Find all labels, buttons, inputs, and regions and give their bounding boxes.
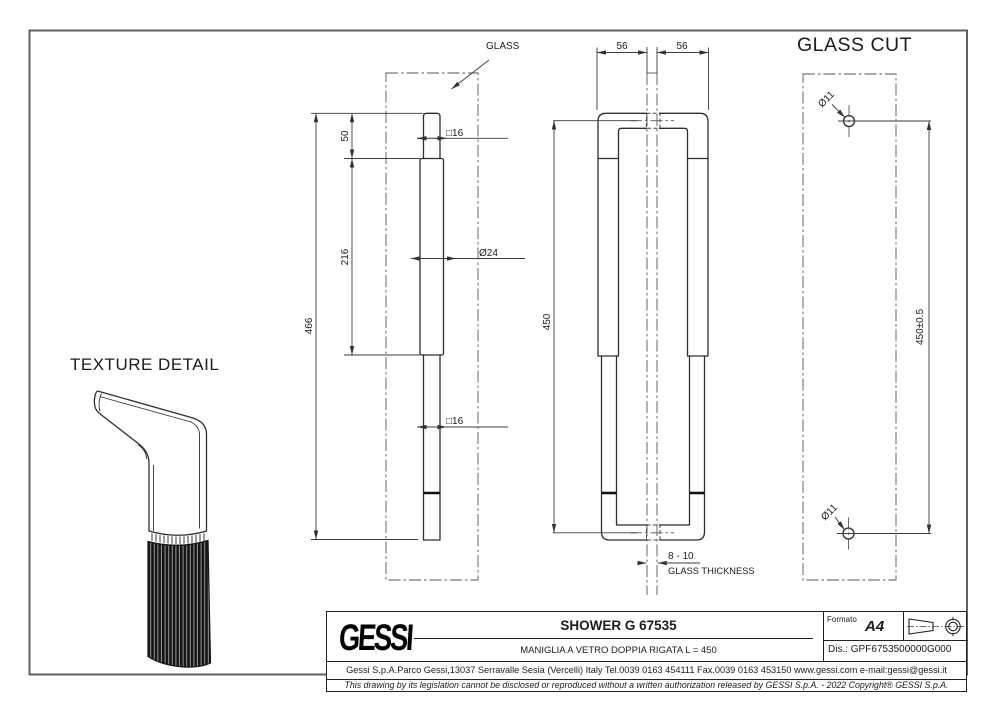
dim-450-tolerance-label: 450±0.5 [915,305,927,349]
glass-thickness-value: 8 - 10 [668,552,694,562]
texture-detail-title: TEXTURE DETAIL [70,355,219,375]
glass-thickness-label: GLASS THICKNESS [668,567,755,576]
handle-profile [420,113,444,540]
dim-450-label: 450 [542,307,554,337]
gessi-logo: GESSI [338,619,413,656]
company-address: Gessi S.p.A.Parco Gessi,13037 Serravalle… [327,661,966,679]
dim-216-label: 216 [340,242,352,272]
hole-bottom [835,517,931,550]
titleblock-divider [823,640,968,641]
title-block: GESSI SHOWER G 67535 MANIGLIA A VETRO DO… [326,611,967,692]
hole-top [832,105,931,138]
left-handle [598,113,647,540]
glass-cut-title: GLASS CUT [797,34,912,57]
formato-label: Formato [827,615,857,624]
front-view-dimensions [553,47,709,563]
glass-leader-arrow [452,60,490,89]
texture-detail-drawing [94,391,210,667]
titleblock-divider [903,612,904,640]
dim-square16-top-label: □16 [446,129,463,139]
titleblock-divider [823,612,824,661]
ribbed-grip [148,541,211,668]
copyright-disclaimer: This drawing by its legislation cannot b… [327,679,966,692]
product-title: SHOWER G 67535 [414,618,823,633]
drawing-sheet: TEXTURE DETAIL GLASS CUT GLASS 50 216 46… [0,0,996,703]
dim-466-label: 466 [304,311,316,341]
front-view [553,47,709,595]
title-separator-line [414,638,813,639]
glass-cut-outline [803,74,896,580]
glass-cut-view [803,74,931,580]
drawing-number: Dis.: GPF6753500000G000 [828,644,951,655]
dim-square16-bottom-label: □16 [446,417,463,427]
formato-value: A4 [865,618,884,635]
projection-symbol-icon [907,616,967,637]
dim-56-left-label: 56 [607,41,637,52]
drawing-linework [0,0,996,703]
glass-edge-lines [647,73,657,595]
glass-label: GLASS [486,42,519,52]
product-subtitle: MANIGLIA A VETRO DOPPIA RIGATA L = 450 [414,645,823,656]
right-handle [660,113,709,540]
dim-dia24-label: Ø24 [479,249,498,259]
glass-pane-outline [386,73,478,580]
dim-50-label: 50 [340,121,352,151]
dim-56-right-label: 56 [667,41,697,52]
